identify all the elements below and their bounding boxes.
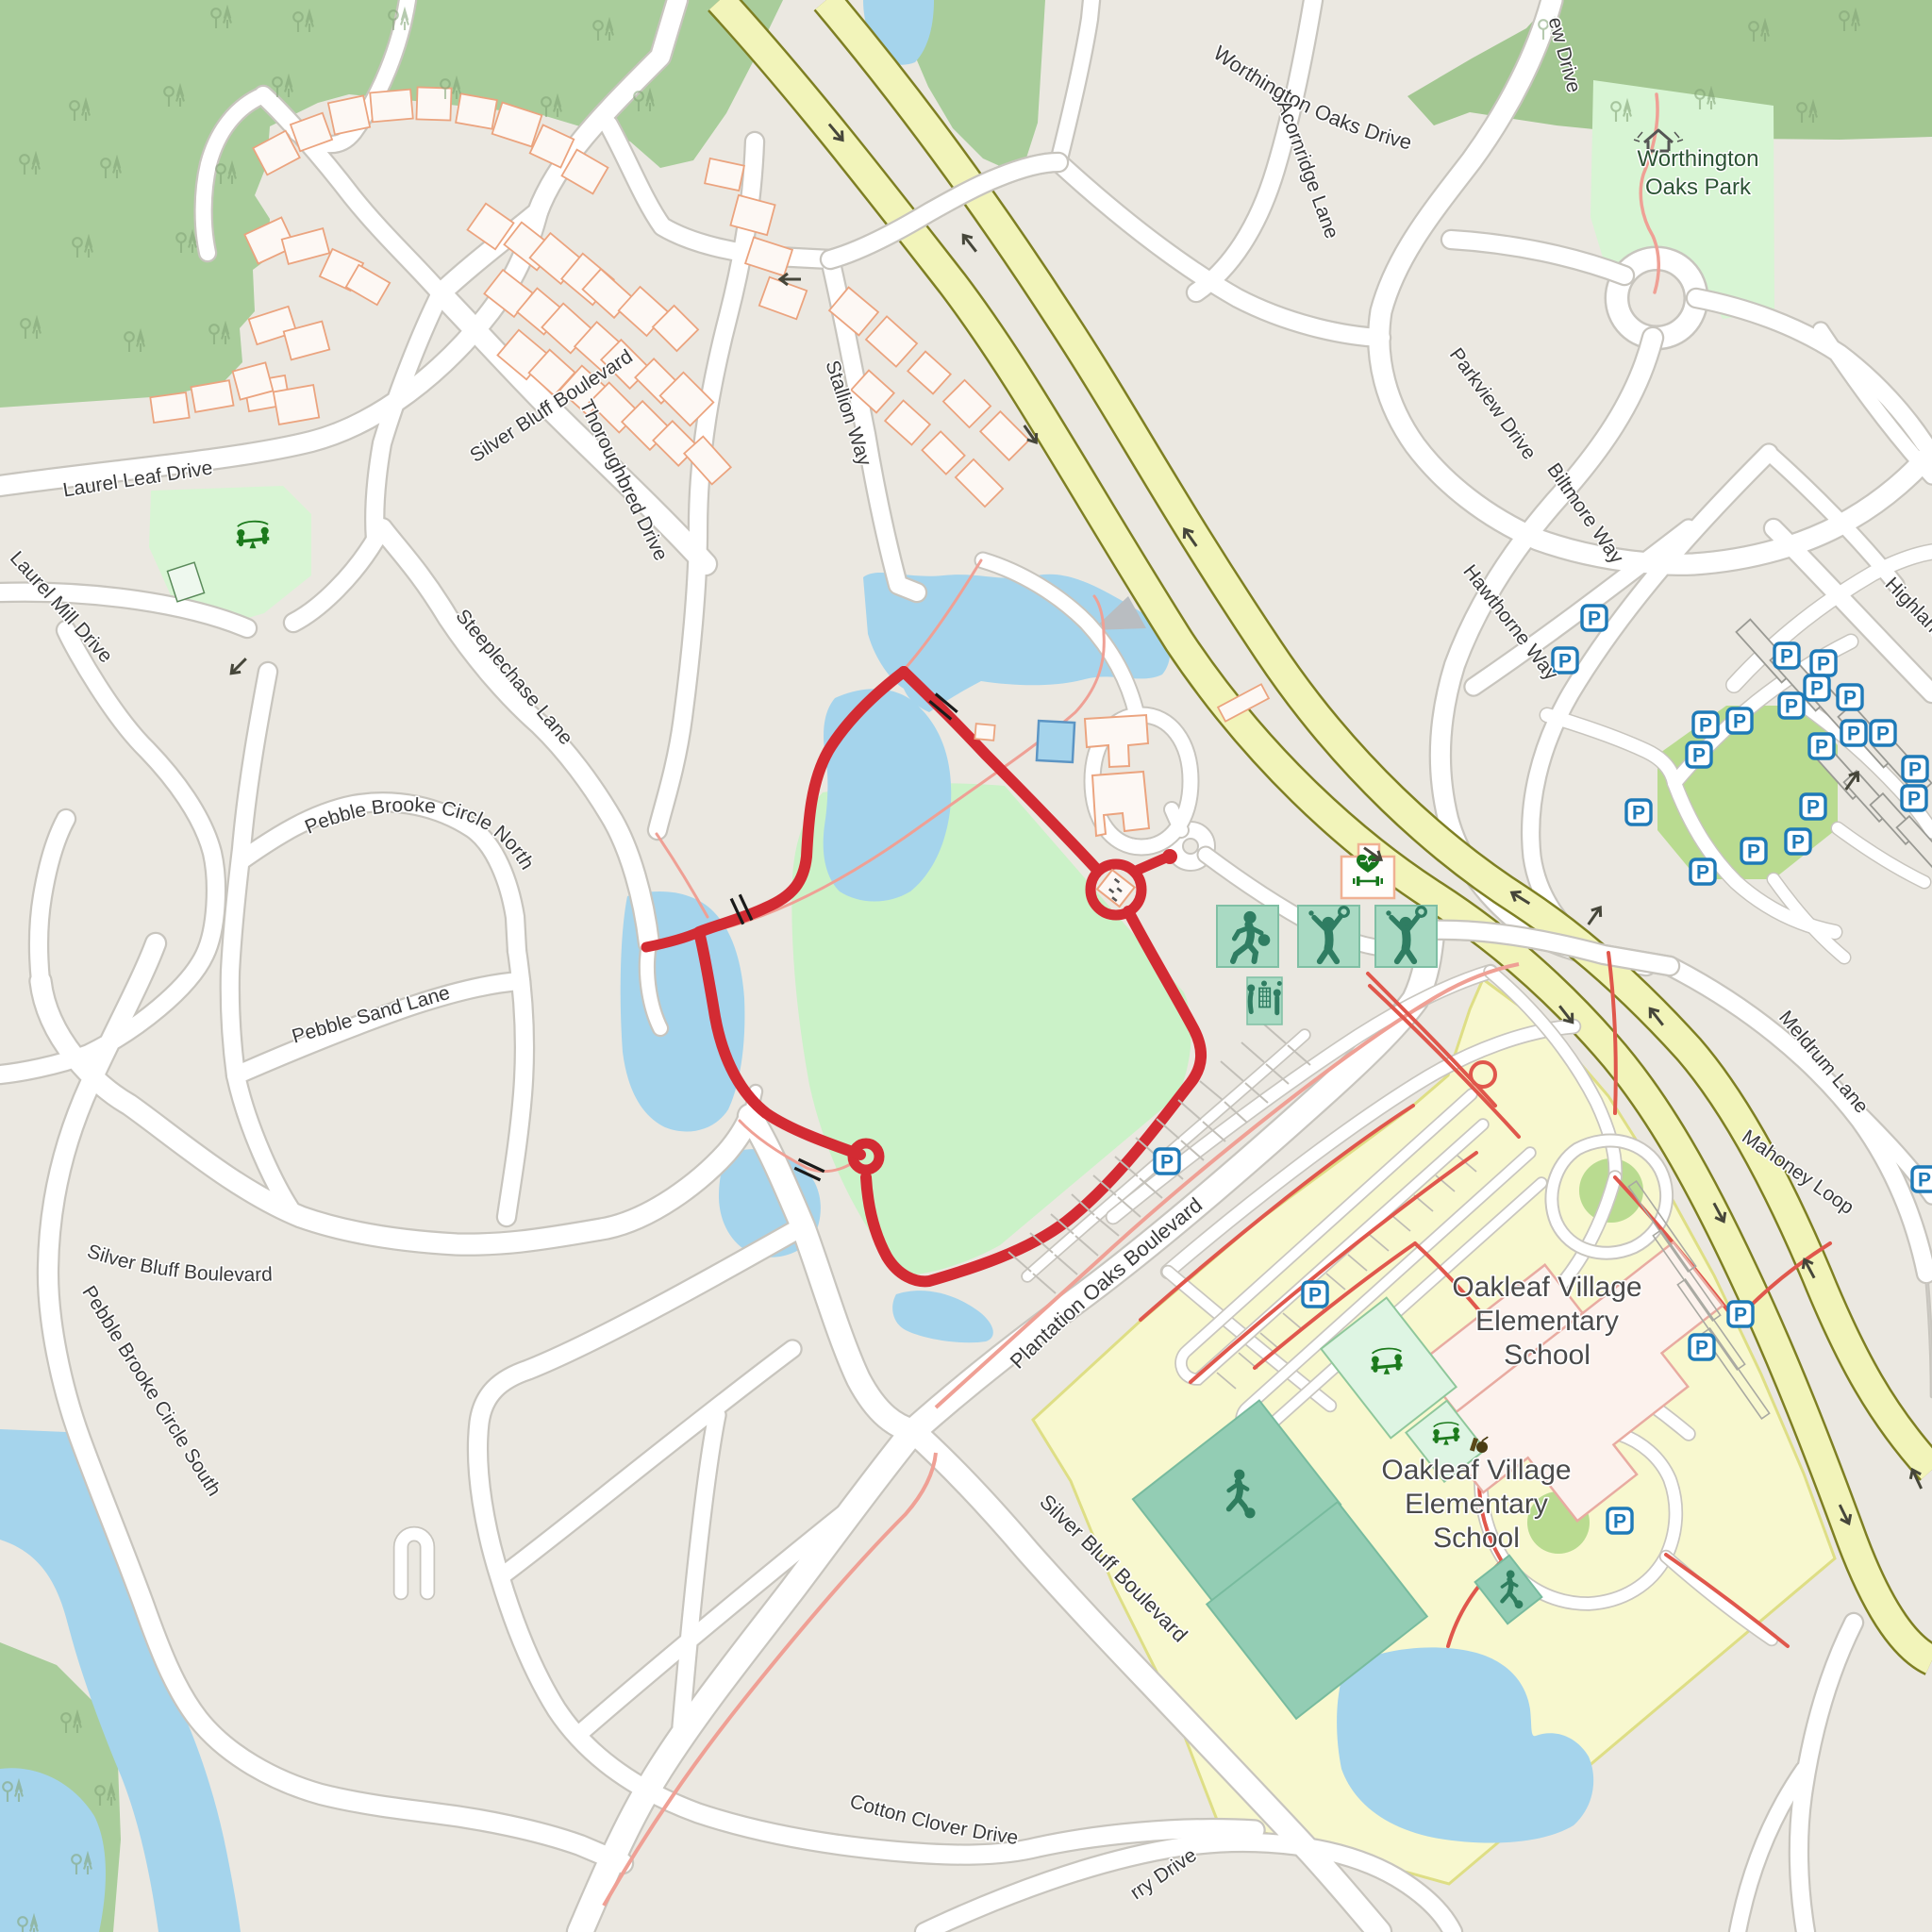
svg-text:School: School bbox=[1504, 1340, 1591, 1371]
svg-text:Elementary: Elementary bbox=[1405, 1489, 1548, 1520]
svg-text:Oaks Park: Oaks Park bbox=[1645, 175, 1752, 200]
svg-text:Oakleaf Village: Oakleaf Village bbox=[1381, 1455, 1571, 1486]
svg-text:Oakleaf Village: Oakleaf Village bbox=[1452, 1272, 1641, 1303]
svg-text:School: School bbox=[1433, 1523, 1520, 1554]
svg-text:Elementary: Elementary bbox=[1475, 1306, 1619, 1337]
svg-text:Worthington: Worthington bbox=[1638, 146, 1759, 172]
